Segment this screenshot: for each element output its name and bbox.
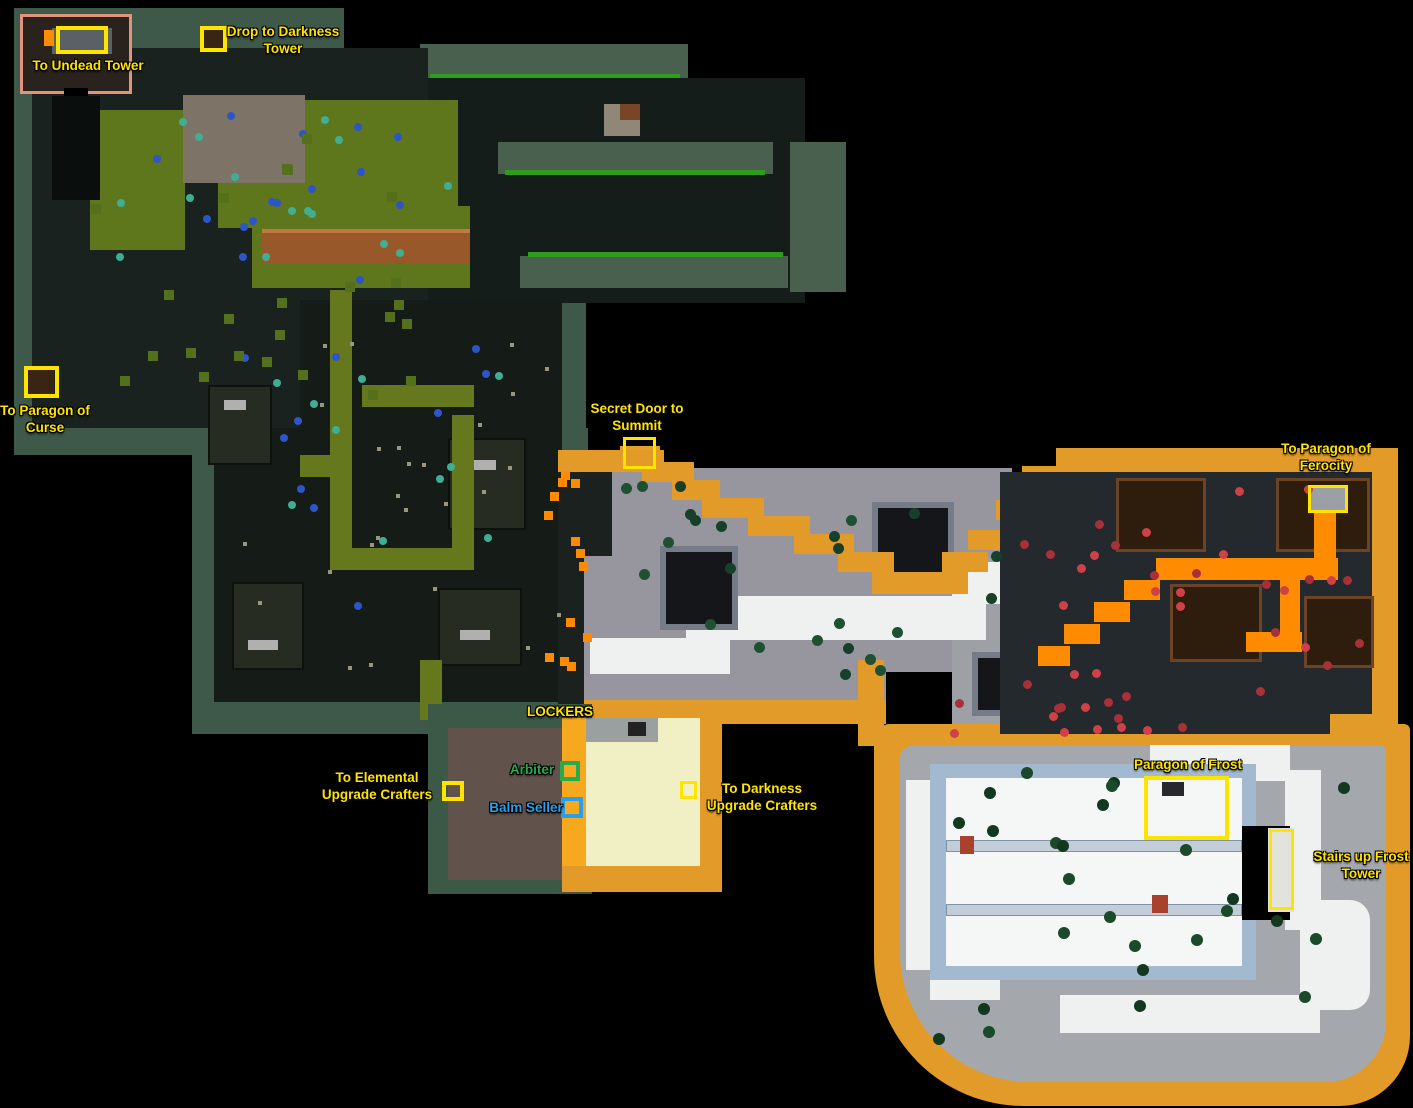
bushes-central bbox=[840, 669, 851, 680]
annotation-to-elemental-upgrade-crafters-label: To ElementalUpgrade Crafters bbox=[322, 769, 432, 803]
annotation-balm-seller-box bbox=[561, 797, 583, 818]
annotation-to-elemental-upgrade-crafters-box bbox=[442, 781, 464, 801]
bushes-snow-zone bbox=[1057, 840, 1069, 852]
annotation-secret-door-to-summit-label: Secret Door toSummit bbox=[590, 400, 683, 434]
shop-pale-room bbox=[586, 718, 700, 882]
moss-dots-northwest bbox=[298, 370, 308, 380]
annotation-drop-to-darkness-tower-box bbox=[200, 26, 227, 52]
bushes-central bbox=[812, 635, 823, 646]
annotation-to-paragon-of-curse-label-line: To Paragon of bbox=[0, 402, 90, 419]
lava-dots-margin bbox=[576, 549, 585, 558]
shop-gray-top bbox=[586, 718, 658, 742]
red-mushrooms bbox=[1280, 586, 1289, 595]
flowers-northwest bbox=[396, 201, 404, 209]
annotation-to-paragon-of-ferocity-label-line: Ferocity bbox=[1281, 457, 1371, 474]
flowers-midleft bbox=[294, 417, 302, 425]
bushes-snow-zone bbox=[1104, 911, 1116, 923]
bushes-snow-zone bbox=[1271, 915, 1283, 927]
red-mushrooms bbox=[1090, 551, 1099, 560]
ruin-3 bbox=[232, 582, 304, 670]
flowers-northwest bbox=[262, 253, 270, 261]
annotation-to-paragon-of-curse-label: To Paragon ofCurse bbox=[0, 402, 90, 436]
moss-dots-northwest bbox=[345, 282, 355, 292]
lava-stream-s3 bbox=[1064, 624, 1100, 644]
flowers-northwest bbox=[396, 249, 404, 257]
red-mushrooms bbox=[1095, 520, 1104, 529]
wood-bridge bbox=[262, 233, 470, 263]
bone-items bbox=[444, 502, 448, 506]
orange-wall-c9 bbox=[942, 552, 988, 572]
red-mushrooms bbox=[1092, 669, 1101, 678]
flowers-northwest bbox=[357, 168, 365, 176]
moss-patch-a bbox=[90, 110, 185, 250]
flowers-northwest bbox=[394, 133, 402, 141]
dirt-room-1 bbox=[1116, 478, 1206, 552]
cave-altar-top bbox=[620, 104, 640, 120]
moss-dots-northwest bbox=[368, 390, 378, 400]
left-bottom-black bbox=[0, 455, 192, 755]
bone-items bbox=[320, 403, 324, 407]
annotation-to-elemental-upgrade-crafters-label-line: Upgrade Crafters bbox=[322, 786, 432, 803]
flowers-northwest bbox=[335, 136, 343, 144]
flowers-northwest bbox=[179, 118, 187, 126]
flowers-midleft bbox=[332, 426, 340, 434]
bone-items bbox=[478, 423, 482, 427]
lava-stream-s2 bbox=[1094, 602, 1130, 622]
annotation-arbiter-box bbox=[560, 761, 580, 781]
ice-banner-2 bbox=[1152, 895, 1168, 913]
red-mushrooms bbox=[1142, 528, 1151, 537]
ice-banner-1 bbox=[960, 836, 974, 854]
red-mushrooms-south bbox=[1057, 703, 1066, 712]
bone-items bbox=[407, 462, 411, 466]
moss-dots-northwest bbox=[234, 351, 244, 361]
bone-items bbox=[433, 587, 437, 591]
annotation-stairs-up-frost-tower-label-line: Stairs up Frost bbox=[1313, 848, 1408, 865]
stone-building-1 bbox=[660, 546, 738, 630]
red-mushrooms-south bbox=[1104, 698, 1113, 707]
annotation-lockers-label-line: LOCKERS bbox=[527, 703, 593, 720]
annotation-to-darkness-upgrade-crafters-box bbox=[680, 781, 697, 799]
bushes-central bbox=[865, 654, 876, 665]
bone-items bbox=[396, 494, 400, 498]
lava-dots-margin bbox=[560, 657, 569, 666]
annotation-stairs-up-frost-tower-label-line: Tower bbox=[1313, 865, 1408, 882]
moss-dots-northwest bbox=[387, 192, 397, 202]
moss-dots-northwest bbox=[224, 314, 234, 324]
ruin-4 bbox=[438, 588, 522, 666]
bushes-central bbox=[829, 531, 840, 542]
bushes-snow-zone bbox=[1221, 905, 1233, 917]
bushes-central bbox=[675, 481, 686, 492]
bone-items bbox=[376, 536, 380, 540]
nw-top-black-notch bbox=[344, 8, 586, 48]
red-mushrooms-south bbox=[950, 729, 959, 738]
bone-items bbox=[482, 490, 486, 494]
annotation-to-paragon-of-curse-box bbox=[24, 366, 59, 398]
bone-items bbox=[545, 367, 549, 371]
shop-item-dark bbox=[628, 722, 646, 736]
ruin-1 bbox=[208, 385, 272, 465]
red-mushrooms bbox=[1235, 487, 1244, 496]
bone-items bbox=[557, 613, 561, 617]
bone-items bbox=[526, 646, 530, 650]
bushes-snow-zone bbox=[1299, 991, 1311, 1003]
bone-items bbox=[348, 666, 352, 670]
bushes-central bbox=[991, 551, 1002, 562]
lava-dots-margin bbox=[558, 478, 567, 487]
bone-items bbox=[422, 463, 426, 467]
moss-path-4 bbox=[362, 385, 474, 407]
annotation-secret-door-to-summit-label-line: Summit bbox=[590, 417, 683, 434]
annotation-to-darkness-upgrade-crafters-label-line: To Darkness bbox=[707, 780, 817, 797]
orange-wall-c5 bbox=[748, 516, 810, 536]
bushes-snow-zone bbox=[1097, 799, 1109, 811]
lava-dots-margin bbox=[550, 492, 559, 501]
dirt-room-4 bbox=[1304, 596, 1374, 668]
moss-dots-northwest bbox=[275, 330, 285, 340]
bushes-central bbox=[663, 537, 674, 548]
red-mushrooms bbox=[1355, 639, 1364, 648]
bone-items bbox=[397, 446, 401, 450]
red-mushrooms-south bbox=[1060, 728, 1069, 737]
moss-dots-northwest bbox=[302, 134, 312, 144]
granite-2 bbox=[584, 556, 666, 712]
lava-dots-margin bbox=[571, 537, 580, 546]
annotation-to-paragon-of-ferocity-label: To Paragon ofFerocity bbox=[1281, 440, 1371, 474]
lava-zone-orange-bottom bbox=[1330, 714, 1398, 740]
annotation-to-elemental-upgrade-crafters-label-line: To Elemental bbox=[322, 769, 432, 786]
lava-stream-v1 bbox=[1314, 508, 1336, 564]
bushes-central bbox=[716, 521, 727, 532]
bushes-central bbox=[639, 569, 650, 580]
annotation-to-darkness-upgrade-crafters-label-line: Upgrade Crafters bbox=[707, 797, 817, 814]
red-mushrooms bbox=[1192, 569, 1201, 578]
orange-wall-c8 bbox=[872, 572, 968, 594]
bushes-central bbox=[705, 619, 716, 630]
bone-items bbox=[508, 466, 512, 470]
annotation-lockers-label: LOCKERS bbox=[527, 703, 593, 720]
annotation-stairs-up-frost-tower-label: Stairs up FrostTower bbox=[1313, 848, 1408, 882]
annotation-to-paragon-of-curse-label-line: Curse bbox=[0, 419, 90, 436]
annotation-paragon-of-frost-box bbox=[1144, 776, 1229, 840]
red-mushrooms-south bbox=[1178, 723, 1187, 732]
annotation-balm-seller-label-line: Balm Seller bbox=[489, 799, 563, 816]
orange-wall-c4 bbox=[702, 498, 764, 518]
bone-items bbox=[258, 601, 262, 605]
orange-wall-c7 bbox=[838, 552, 894, 572]
flowers-northwest bbox=[116, 253, 124, 261]
flowers-northwest bbox=[380, 240, 388, 248]
bone-items bbox=[370, 543, 374, 547]
red-mushrooms-south bbox=[1093, 725, 1102, 734]
annotation-to-undead-tower-label-line: To Undead Tower bbox=[32, 57, 143, 74]
annotation-stairs-up-frost-tower-box bbox=[1269, 829, 1294, 910]
red-mushrooms bbox=[1271, 628, 1280, 637]
bushes-snow-zone bbox=[1227, 893, 1239, 905]
annotation-to-undead-tower-label: To Undead Tower bbox=[32, 57, 143, 74]
bushes-snow-zone bbox=[1129, 940, 1141, 952]
moss-dots-northwest bbox=[199, 372, 209, 382]
bone-items bbox=[243, 542, 247, 546]
lava-dots-margin bbox=[583, 633, 592, 642]
bushes-central bbox=[986, 593, 997, 604]
moss-path-5 bbox=[300, 455, 352, 477]
snow-path-c bbox=[1060, 995, 1320, 1033]
bone-items bbox=[377, 447, 381, 451]
ice-shelf-1 bbox=[946, 840, 1242, 852]
lava-dots-margin bbox=[571, 479, 580, 488]
bushes-snow-zone bbox=[1338, 782, 1350, 794]
annotation-to-darkness-upgrade-crafters-label: To DarknessUpgrade Crafters bbox=[707, 780, 817, 814]
flowers-midleft bbox=[482, 370, 490, 378]
red-mushrooms bbox=[1151, 587, 1160, 596]
snow-path-central-2 bbox=[590, 638, 730, 674]
game-map: To Undead TowerDrop to DarknessTowerTo P… bbox=[0, 0, 1413, 1108]
red-mushrooms bbox=[1023, 680, 1032, 689]
ruin-3-item bbox=[248, 640, 278, 650]
flowers-midleft bbox=[354, 602, 362, 610]
annotation-secret-door-to-summit-box bbox=[623, 437, 656, 469]
lava-dots-margin bbox=[579, 562, 588, 571]
bushes-snow-zone bbox=[1058, 927, 1070, 939]
red-mushrooms bbox=[1327, 576, 1336, 585]
moss-path-3 bbox=[452, 415, 474, 570]
moss-dots-northwest bbox=[186, 348, 196, 358]
bushes-snow-zone bbox=[984, 787, 996, 799]
annotation-arbiter-label: Arbiter bbox=[510, 761, 554, 778]
moss-dots-northwest bbox=[406, 376, 416, 386]
bushes-central bbox=[846, 515, 857, 526]
moss-path-7 bbox=[330, 290, 352, 390]
bone-items bbox=[369, 663, 373, 667]
annotation-drop-to-darkness-tower-label-line: Tower bbox=[227, 40, 340, 57]
bone-items bbox=[350, 342, 354, 346]
moss-dots-northwest bbox=[164, 290, 174, 300]
moss-dots-northwest bbox=[394, 300, 404, 310]
ruin-4-item bbox=[460, 630, 490, 640]
bushes-snow-zone bbox=[1137, 964, 1149, 976]
annotation-paragon-of-frost-label: Paragon of Frost bbox=[1134, 756, 1242, 773]
bushes-central bbox=[690, 515, 701, 526]
ruin-1-item bbox=[224, 400, 246, 410]
red-mushrooms-south bbox=[1117, 723, 1126, 732]
moss-dots-northwest bbox=[277, 298, 287, 308]
bushes-snow-zone bbox=[987, 825, 999, 837]
orange-wall-c6 bbox=[794, 534, 854, 554]
annotation-to-paragon-of-ferocity-box bbox=[1308, 485, 1348, 513]
moss-dots-northwest bbox=[148, 351, 158, 361]
moss-dots-northwest bbox=[91, 204, 101, 214]
undead-tower-lava bbox=[44, 30, 54, 46]
lava-zone-orange-right bbox=[1372, 448, 1398, 738]
moss-path-1 bbox=[330, 385, 352, 570]
annotation-to-paragon-of-ferocity-label-line: To Paragon of bbox=[1281, 440, 1371, 457]
bushes-snow-zone bbox=[933, 1033, 945, 1045]
flowers-northwest bbox=[444, 182, 452, 190]
bushes-snow-zone bbox=[983, 1026, 995, 1038]
cave-top-wall bbox=[420, 44, 688, 78]
moss-dots-northwest bbox=[391, 278, 401, 288]
annotation-secret-door-to-summit-label-line: Secret Door to bbox=[590, 400, 683, 417]
red-mushrooms bbox=[1256, 687, 1265, 696]
annotation-drop-to-darkness-tower-label-line: Drop to Darkness bbox=[227, 23, 340, 40]
moss-dots-northwest bbox=[402, 319, 412, 329]
lava-dots-margin bbox=[544, 511, 553, 520]
moss-dots-northwest bbox=[283, 165, 293, 175]
flowers-midleft bbox=[495, 372, 503, 380]
shop-orange-bottom bbox=[562, 866, 722, 892]
lava-stream-s4 bbox=[1038, 646, 1070, 666]
bone-items bbox=[328, 570, 332, 574]
annotation-paragon-of-frost-label-line: Paragon of Frost bbox=[1134, 756, 1242, 773]
moss-dots-northwest bbox=[219, 193, 229, 203]
bushes-central bbox=[725, 563, 736, 574]
annotation-balm-seller-label: Balm Seller bbox=[489, 799, 563, 816]
red-mushrooms bbox=[1219, 550, 1228, 559]
bone-items bbox=[510, 343, 514, 347]
bone-items bbox=[511, 392, 515, 396]
lava-dots-margin bbox=[545, 653, 554, 662]
cave-moss-1 bbox=[505, 170, 765, 175]
annotation-to-undead-tower-box bbox=[56, 26, 108, 54]
red-mushrooms bbox=[1020, 540, 1029, 549]
flowers-northwest bbox=[321, 116, 329, 124]
cave-wall-band-2 bbox=[520, 256, 788, 288]
cave-wall-vert bbox=[790, 142, 846, 292]
annotation-arbiter-label-line: Arbiter bbox=[510, 761, 554, 778]
dark-shaft bbox=[52, 96, 100, 200]
moss-dots-northwest bbox=[262, 357, 272, 367]
annotation-drop-to-darkness-tower-label: Drop to DarknessTower bbox=[227, 23, 340, 57]
ice-shelf-2 bbox=[946, 904, 1242, 916]
bone-items bbox=[323, 344, 327, 348]
bushes-central bbox=[875, 665, 886, 676]
red-mushrooms bbox=[1059, 601, 1068, 610]
lava-dots-margin bbox=[566, 618, 575, 627]
snow-path-e bbox=[1300, 900, 1370, 1010]
bone-items bbox=[404, 508, 408, 512]
moss-dots-northwest bbox=[120, 376, 130, 386]
moss-dots-northwest bbox=[385, 312, 395, 322]
cave-moss-2 bbox=[528, 252, 783, 257]
bushes-central bbox=[834, 618, 845, 629]
